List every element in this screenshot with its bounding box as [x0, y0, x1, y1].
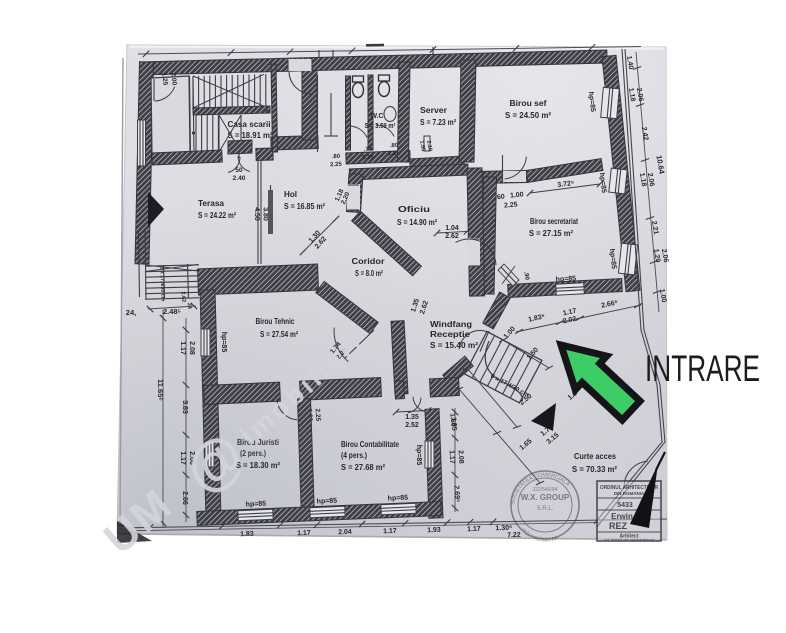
- svg-text:5433: 5433: [617, 502, 633, 509]
- svg-text:Birou Contabilitate: Birou Contabilitate: [341, 440, 399, 449]
- svg-text:6 x 17.4/30 cm: 6 x 17.4/30 cm: [158, 266, 165, 301]
- svg-text:S = 15.40 m²: S = 15.40 m²: [430, 341, 478, 350]
- svg-text:W.X. GROUP: W.X. GROUP: [521, 493, 570, 502]
- svg-text:2.08: 2.08: [188, 341, 195, 355]
- svg-text:2.69⁵: 2.69⁵: [453, 485, 461, 502]
- svg-text:3.83: 3.83: [181, 400, 188, 414]
- svg-text:Curte acces: Curte acces: [574, 451, 616, 461]
- svg-text:Erwin: Erwin: [611, 512, 633, 521]
- svg-text:2.25: 2.25: [330, 162, 343, 169]
- svg-text:Coridor: Coridor: [352, 257, 385, 266]
- svg-text:S = 8.0 m²: S = 8.0 m²: [355, 269, 383, 278]
- svg-text:1.17: 1.17: [448, 450, 456, 464]
- svg-text:S = 27.15 m²: S = 27.15 m²: [529, 229, 573, 238]
- svg-text:Birou sef: Birou sef: [510, 99, 547, 108]
- svg-text:S = 3.59 m²: S = 3.59 m²: [365, 121, 396, 130]
- svg-text:1.17: 1.17: [383, 528, 397, 535]
- svg-text:2.25: 2.25: [504, 201, 518, 209]
- svg-text:1.17: 1.17: [467, 526, 481, 533]
- svg-text:S.R.L.: S.R.L.: [537, 506, 554, 512]
- svg-text:2.04: 2.04: [338, 529, 352, 536]
- svg-text:S = 14.90 m²: S = 14.90 m²: [397, 218, 437, 227]
- svg-text:cu drept de semnatura: cu drept de semnatura: [604, 537, 655, 542]
- svg-text:hp=85: hp=85: [388, 495, 409, 503]
- svg-text:hp=85: hp=85: [556, 275, 577, 283]
- svg-text:1.35: 1.35: [405, 414, 419, 421]
- svg-text:J22/546/94: J22/546/94: [533, 487, 558, 493]
- svg-text:S = 18.91 m²: S = 18.91 m²: [228, 131, 273, 140]
- svg-text:1.83: 1.83: [240, 531, 254, 538]
- svg-text:hp=85: hp=85: [415, 445, 422, 466]
- svg-text:hp=85: hp=85: [246, 501, 267, 509]
- svg-text:.60: .60: [495, 194, 505, 202]
- svg-text:2.62: 2.62: [445, 233, 459, 240]
- svg-text:1.85: 1.85: [450, 417, 458, 431]
- svg-text:2.48⁵: 2.48⁵: [163, 307, 182, 316]
- svg-text:Terasa: Terasa: [198, 199, 225, 208]
- svg-text:Oficiu: Oficiu: [398, 205, 430, 214]
- svg-text:S = 7.23 m²: S = 7.23 m²: [420, 118, 456, 127]
- svg-text:S = 70.33 m²: S = 70.33 m²: [572, 464, 617, 474]
- svg-text:1.04: 1.04: [445, 225, 459, 232]
- svg-text:REZ: REZ: [609, 521, 628, 531]
- svg-text:Birou secretariat: Birou secretariat: [530, 217, 578, 226]
- svg-text:2.00: 2.00: [169, 72, 177, 86]
- svg-text:50: 50: [235, 167, 243, 174]
- svg-text:Birou Tehnic: Birou Tehnic: [256, 317, 295, 326]
- svg-text:hp=85: hp=85: [220, 332, 227, 353]
- svg-text:2.08: 2.08: [457, 450, 465, 464]
- svg-text:S = 24.50 m²: S = 24.50 m²: [505, 111, 551, 120]
- svg-text:1.17: 1.17: [179, 341, 186, 355]
- svg-text:1.93: 1.93: [427, 527, 441, 534]
- svg-text:S = 27.54 m²: S = 27.54 m²: [260, 330, 298, 339]
- svg-text:S = 16.85 m²: S = 16.85 m²: [284, 202, 325, 211]
- svg-text:2.62: 2.62: [180, 291, 187, 302]
- svg-text:3.80: 3.80: [262, 207, 269, 221]
- svg-text:.80: .80: [332, 154, 341, 160]
- svg-text:2.66: 2.66: [181, 491, 188, 505]
- svg-text:2.25: 2.25: [362, 155, 375, 162]
- svg-text:DIN ROMANIA: DIN ROMANIA: [614, 491, 645, 496]
- svg-text:Receptie: Receptie: [430, 330, 471, 339]
- svg-text:Hol: Hol: [284, 190, 297, 199]
- svg-text:(4 pers.): (4 pers.): [341, 451, 367, 460]
- svg-text:1.00: 1.00: [510, 191, 524, 199]
- svg-text:hp=85: hp=85: [317, 498, 338, 506]
- svg-text:7.22: 7.22: [507, 532, 521, 539]
- svg-text:S = 24.22 m²: S = 24.22 m²: [198, 211, 236, 220]
- svg-text:24,: 24,: [126, 308, 136, 317]
- svg-text:2.40: 2.40: [233, 175, 246, 182]
- svg-text:11.65⁵: 11.65⁵: [156, 379, 165, 401]
- svg-text:S = 27.68 m²: S = 27.68 m²: [341, 463, 385, 472]
- svg-text:INTRARE: INTRARE: [645, 348, 760, 389]
- svg-text:2.52: 2.52: [405, 422, 419, 429]
- svg-text:4.50: 4.50: [253, 207, 260, 221]
- svg-text:Server: Server: [420, 106, 447, 115]
- svg-text:Windfang: Windfang: [430, 320, 472, 329]
- svg-text:W.C: W.C: [371, 111, 385, 120]
- svg-text:1.25: 1.25: [160, 72, 168, 86]
- svg-text:1.17: 1.17: [297, 530, 311, 537]
- svg-text:2.25: 2.25: [314, 408, 322, 421]
- svg-text:.74: .74: [364, 147, 373, 153]
